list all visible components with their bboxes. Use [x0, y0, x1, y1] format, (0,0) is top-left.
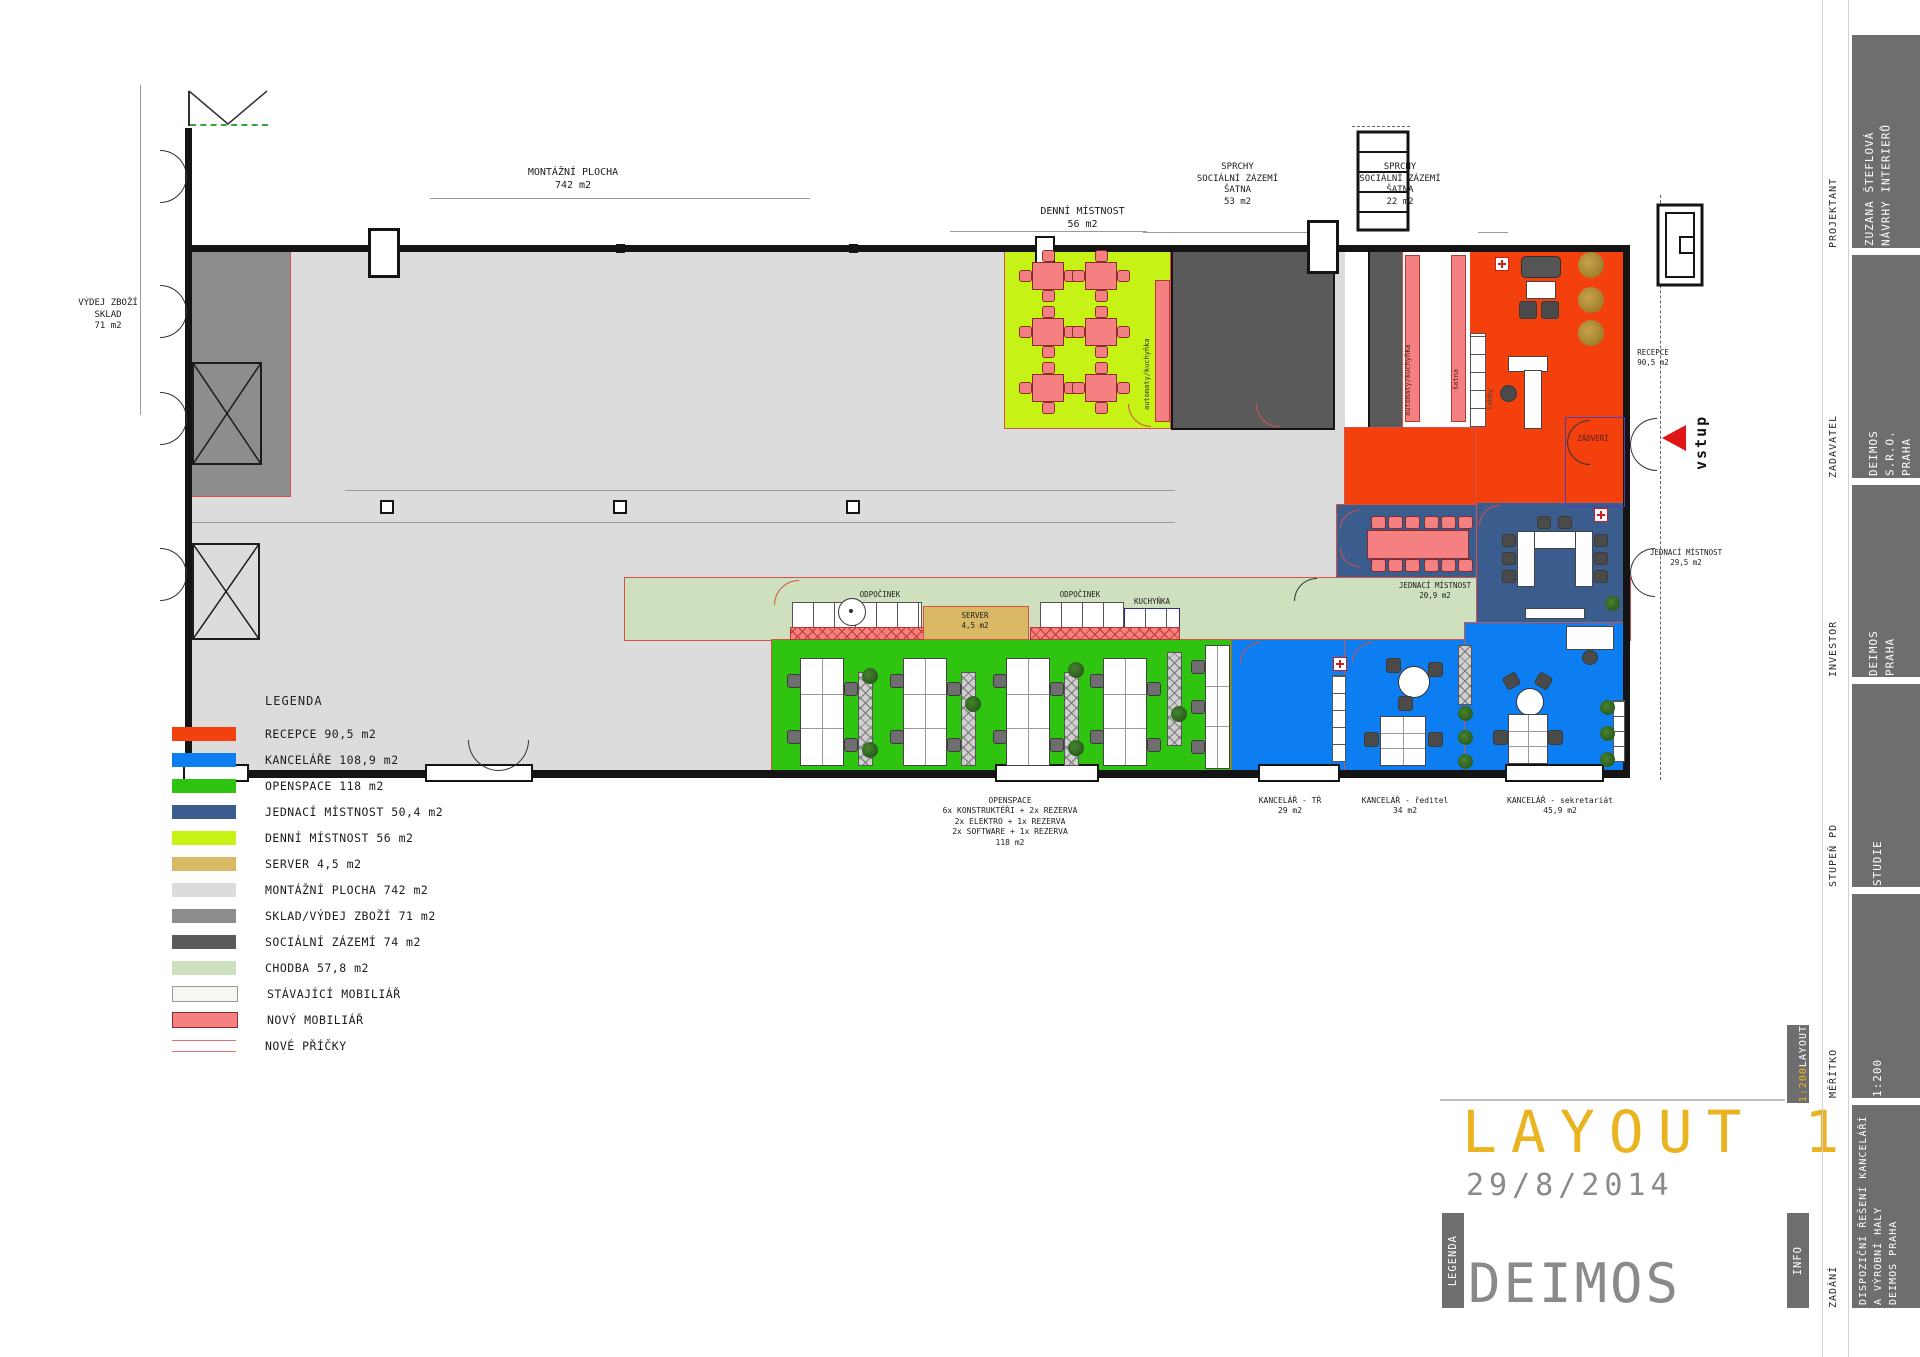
- legend-item-label: OPENSPACE 118 m2: [265, 779, 384, 793]
- chair: [947, 682, 961, 696]
- legend-item-label: SERVER 4,5 m2: [265, 857, 362, 871]
- dim-line: [1478, 232, 1508, 233]
- wall-right: [1623, 245, 1630, 778]
- legend-swatch: [172, 1040, 236, 1052]
- chair: [1493, 730, 1508, 745]
- shaft: [1307, 220, 1339, 274]
- meritko-label: MĚŘÍTKO: [1828, 1038, 1839, 1098]
- chair: [1095, 250, 1108, 262]
- plant: [1458, 754, 1473, 769]
- legend-item: DENNÍ MÍSTNOST 56 m2: [172, 830, 592, 845]
- chair: [1548, 730, 1563, 745]
- plant: [1600, 752, 1615, 767]
- drawing-sheet: automaty/kuchyňka šatna automaty/kuchyňk…: [0, 0, 1920, 1357]
- chair: [1019, 270, 1032, 282]
- entrance-arrow-icon: [1662, 425, 1686, 451]
- chair: [1095, 306, 1108, 318]
- u-table: [1575, 531, 1593, 587]
- chair: [1095, 290, 1108, 302]
- info-badge-label: INFO: [1792, 1246, 1804, 1275]
- chair: [1388, 559, 1403, 572]
- chair: [1388, 516, 1403, 529]
- automaty-label: automaty/kuchyňka: [1404, 330, 1412, 416]
- zadveri-label: ZÁDVEŘÍ: [1568, 434, 1618, 444]
- chair: [787, 674, 801, 688]
- legend-item-label: SOCIÁLNÍ ZÁZEMÍ 74 m2: [265, 935, 421, 949]
- chair: [1502, 570, 1516, 583]
- lobby-cabinet: [1470, 333, 1486, 427]
- dim-line: [1143, 232, 1307, 233]
- odpocinek2-label: ODPOČINEK: [1050, 590, 1110, 600]
- chair: [1458, 559, 1473, 572]
- legend-swatch: [172, 753, 236, 767]
- door-frame: [368, 228, 400, 278]
- layout-badge-word: LAYOUT: [1798, 1025, 1809, 1067]
- chair: [1042, 290, 1055, 302]
- round-table: [1398, 666, 1430, 698]
- chair: [1594, 552, 1608, 565]
- chair: [1042, 402, 1055, 414]
- legend-swatch: [172, 961, 236, 975]
- chair: [1537, 516, 1551, 529]
- wall-sill: [995, 764, 1099, 782]
- chair: [1371, 559, 1386, 572]
- chair: [1594, 534, 1608, 547]
- chair: [1424, 516, 1439, 529]
- jednaci295-label: JEDNACÍ MÍSTNOST 29,5 m2: [1642, 548, 1730, 568]
- chair: [787, 730, 801, 744]
- meritko-value: 1:200: [1870, 1053, 1887, 1097]
- legend-swatch: [172, 935, 236, 949]
- legend-item: NOVÉ PŘÍČKY: [172, 1038, 592, 1053]
- legend-item-label: MONTÁŽNÍ PLOCHA 742 m2: [265, 883, 428, 897]
- door-arc: [160, 574, 187, 601]
- legend-item: SKLAD/VÝDEJ ZBOŽÍ 71 m2: [172, 908, 592, 923]
- denni-label: DENNÍ MÍSTNOST 56 m2: [1010, 205, 1155, 231]
- stupen-value: STUDIE: [1870, 838, 1887, 886]
- legend-item-label: SKLAD/VÝDEJ ZBOŽÍ 71 m2: [265, 909, 436, 923]
- chair: [844, 682, 858, 696]
- chair: [1117, 326, 1130, 338]
- first-aid-icon: [1495, 257, 1509, 271]
- chair: [1458, 516, 1473, 529]
- grid-line: [345, 490, 1175, 491]
- dim-line: [430, 198, 810, 199]
- chair: [1371, 516, 1386, 529]
- chair: [1441, 559, 1456, 572]
- legend-swatch: [172, 727, 236, 741]
- storage-bay-mark: [192, 543, 260, 640]
- chair: [1428, 732, 1443, 747]
- legend-item: CHODBA 57,8 m2: [172, 960, 592, 975]
- zadavatel-value: DEIMOS S.R.O. PRAHA: [1866, 382, 1916, 476]
- chair: [844, 738, 858, 752]
- chair: [1441, 516, 1456, 529]
- legend-item-label: NOVÉ PŘÍČKY: [265, 1039, 347, 1053]
- office-chair: [1500, 385, 1517, 402]
- legend-swatch: [172, 779, 236, 793]
- chair: [1019, 326, 1032, 338]
- chair: [1072, 382, 1085, 394]
- legend-item: SERVER 4,5 m2: [172, 856, 592, 871]
- legend-item: JEDNACÍ MÍSTNOST 50,4 m2: [172, 804, 592, 819]
- sprchy22-label: SPRCHY SOCIÁLNÍ ZÁZEMÍ ŠATNA 22 m2: [1330, 162, 1470, 209]
- chair: [993, 730, 1007, 744]
- column: [846, 500, 860, 514]
- desk-pod: [903, 658, 947, 766]
- chair: [890, 674, 904, 688]
- chair: [1019, 382, 1032, 394]
- dim-line: [950, 231, 1147, 232]
- chair: [1191, 700, 1205, 714]
- info-badge: INFO: [1787, 1213, 1809, 1308]
- kancelar-sekretariat-label: KANCELÁŘ - sekretariát 45,9 m2: [1500, 796, 1620, 817]
- legend-item-label: KANCELÁŘE 108,9 m2: [265, 753, 399, 767]
- legend-item-label: CHODBA 57,8 m2: [265, 961, 369, 975]
- satna-label: šatna: [1452, 350, 1460, 390]
- chair: [1502, 534, 1516, 547]
- chair: [1090, 674, 1104, 688]
- legend-swatch: [172, 831, 236, 845]
- door-arc: [160, 311, 187, 338]
- chair: [993, 674, 1007, 688]
- legend-swatch: [172, 986, 238, 1002]
- wall-sill: [1505, 764, 1604, 782]
- zadveri-outline: [1565, 417, 1625, 507]
- legend-item-label: DENNÍ MÍSTNOST 56 m2: [265, 831, 413, 845]
- table: [1085, 262, 1117, 290]
- chair: [1364, 732, 1379, 747]
- desk-pod: [1006, 658, 1050, 766]
- door-arc: [160, 418, 187, 445]
- layout-badge-scale: 1:200: [1798, 1068, 1809, 1103]
- projektant-label: PROJEKTANT: [1828, 178, 1839, 248]
- plant: [862, 742, 878, 758]
- table: [1032, 318, 1064, 346]
- legend-item: KANCELÁŘE 108,9 m2: [172, 752, 592, 767]
- plant: [1605, 596, 1620, 611]
- desk: [1566, 626, 1614, 650]
- property-line: [1352, 126, 1410, 127]
- chair: [1042, 346, 1055, 358]
- plant: [1068, 662, 1084, 678]
- chair: [947, 738, 961, 752]
- chair: [1117, 382, 1130, 394]
- chair: [1095, 362, 1108, 374]
- wall-top: [185, 245, 1630, 252]
- legend-swatch: [172, 805, 236, 819]
- chair: [1398, 696, 1413, 711]
- jednaci209-label: JEDNACÍ MÍSTNOST 20,9 m2: [1390, 581, 1480, 601]
- odpocinek1-label: ODPOČINEK: [850, 590, 910, 600]
- legend-title: LEGENDA: [265, 694, 592, 708]
- plant: [1578, 252, 1604, 278]
- sprchy53-label: SPRCHY SOCIÁLNÍ ZÁZEMÍ ŠATNA 53 m2: [1150, 162, 1325, 209]
- chair: [1428, 662, 1443, 677]
- zadavatel-label: ZADAVATEL: [1828, 402, 1839, 478]
- locker-strip: [1030, 627, 1180, 640]
- zadani-value: DISPOZIČNÍ ŘEŠENÍ KANCELÁŘÍ A VÝROBNÍ HA…: [1856, 1112, 1901, 1305]
- table: [1032, 262, 1064, 290]
- chair: [1502, 552, 1516, 565]
- chair: [1386, 658, 1401, 673]
- legend-item: NOVÝ MOBILIÁŘ: [172, 1012, 592, 1027]
- legend-swatch: [172, 909, 236, 923]
- round-table-dot: [849, 609, 853, 613]
- sofa: [1521, 256, 1561, 278]
- company-logo: DEIMOS: [1468, 1252, 1681, 1315]
- chair: [1095, 402, 1108, 414]
- dim-extension: [140, 85, 141, 415]
- table: [1085, 318, 1117, 346]
- legend-item-label: STÁVAJÍCÍ MOBILIÁŘ: [267, 987, 401, 1001]
- plant: [1600, 700, 1615, 715]
- door-arc: [160, 548, 187, 575]
- double-desk: [1380, 716, 1426, 766]
- office-cabinet: [1332, 675, 1346, 762]
- zone-recepce-ext: [1345, 428, 1475, 505]
- legend-swatch: [172, 857, 236, 871]
- kancelar-tr-label: KANCELÁŘ - TŘ 29 m2: [1240, 796, 1340, 817]
- chair: [1147, 682, 1161, 696]
- chair: [1558, 516, 1572, 529]
- montazni-label: MONTÁŽNÍ PLOCHA 742 m2: [493, 166, 653, 192]
- chair: [1095, 346, 1108, 358]
- chair: [1594, 570, 1608, 583]
- legend: LEGENDA RECEPCE 90,5 m2KANCELÁŘE 108,9 m…: [172, 694, 592, 1064]
- chair: [1191, 740, 1205, 754]
- legend-rows: RECEPCE 90,5 m2KANCELÁŘE 108,9 m2OPENSPA…: [172, 726, 592, 1053]
- wall-left: [185, 128, 192, 778]
- double-desk: [1508, 714, 1548, 764]
- plant: [1458, 730, 1473, 745]
- shelf: [1458, 645, 1472, 705]
- server-label: SERVER 4,5 m2: [940, 611, 1010, 631]
- door-arc: [1630, 418, 1657, 445]
- legend-item: RECEPCE 90,5 m2: [172, 726, 592, 741]
- zadani-label: ZADÁNÍ: [1828, 1253, 1839, 1308]
- armchair: [1541, 301, 1559, 319]
- projektant-value: ZUZANA ŠTEFLOVÁ NÁVRHY INTERIERŮ: [1862, 118, 1895, 246]
- desk-pod: [800, 658, 844, 766]
- door-arc: [160, 176, 187, 203]
- legend-item: STÁVAJÍCÍ MOBILIÁŘ: [172, 986, 592, 1001]
- openspace-label: OPENSPACE 6x KONSTRUKTÉŘI + 2x REZERVA 2…: [905, 796, 1115, 848]
- chair: [1117, 270, 1130, 282]
- vstup-label: vstup: [1692, 408, 1710, 470]
- plant: [1458, 706, 1473, 721]
- desk-pod: [1205, 645, 1230, 769]
- cabinet-strip: [1155, 280, 1170, 422]
- chair: [1042, 250, 1055, 262]
- plant: [1068, 740, 1084, 756]
- first-aid-icon: [1594, 508, 1608, 522]
- chair: [890, 730, 904, 744]
- chair: [1405, 559, 1420, 572]
- door-arc: [160, 392, 187, 419]
- legend-item-label: JEDNACÍ MÍSTNOST 50,4 m2: [265, 805, 443, 819]
- desk-pod: [1103, 658, 1147, 766]
- shelf: [1167, 652, 1182, 746]
- zone-socialni-22: [1370, 248, 1403, 428]
- legend-swatch: [172, 1012, 238, 1028]
- legend-item-label: NOVÝ MOBILIÁŘ: [267, 1013, 364, 1027]
- legenda-badge: LEGENDA: [1442, 1213, 1464, 1308]
- legend-item-label: RECEPCE 90,5 m2: [265, 727, 376, 741]
- legend-swatch: [172, 883, 236, 897]
- cabinet-strip: [1451, 255, 1466, 422]
- lobby-label: lobby: [1486, 370, 1494, 410]
- vydej-label: VÝDEJ ZBOŽÍ SKLAD 71 m2: [60, 298, 156, 333]
- sidebar-frame-line: [1848, 0, 1849, 1357]
- column: [613, 500, 627, 514]
- shelf: [961, 672, 976, 766]
- plant: [965, 696, 981, 712]
- kancelar-reditel-label: KANCELÁŘ - ředitel 34 m2: [1352, 796, 1458, 817]
- chair: [1050, 738, 1064, 752]
- first-aid-icon: [1333, 657, 1347, 671]
- exterior-stair: [1656, 203, 1704, 287]
- u-table: [1517, 531, 1535, 587]
- plant: [862, 668, 878, 684]
- corridor-cabinets: [1040, 602, 1124, 628]
- plant: [1578, 287, 1604, 313]
- stupen-label: STUPEŇ PD: [1828, 812, 1839, 887]
- table: [1032, 374, 1064, 402]
- chair: [1424, 559, 1439, 572]
- kuchynka-label: KUCHYŇKA: [1122, 597, 1182, 607]
- chair: [1042, 362, 1055, 374]
- office-chair: [1582, 650, 1598, 665]
- conference-table: [1367, 530, 1469, 559]
- armchair: [1519, 301, 1537, 319]
- automaty-label: automaty/kuchyňka: [1143, 300, 1151, 410]
- sidebar-frame-line: [1822, 0, 1823, 1357]
- legenda-badge-label: LEGENDA: [1447, 1235, 1459, 1286]
- storage-bay-mark: [192, 362, 262, 465]
- chair: [1050, 682, 1064, 696]
- round-table: [1516, 688, 1544, 716]
- door-arc: [1630, 572, 1655, 597]
- chair: [1072, 326, 1085, 338]
- door-arc: [160, 285, 187, 312]
- plant: [1600, 726, 1615, 741]
- sheet-date: 29/8/2014: [1466, 1168, 1674, 1203]
- chair: [1042, 306, 1055, 318]
- door-arc: [160, 150, 187, 177]
- table: [1085, 374, 1117, 402]
- recepce-label: RECEPCE 90,5 m2: [1625, 348, 1681, 368]
- investor-value: DEIMOS PRAHA: [1866, 628, 1899, 676]
- legend-item: OPENSPACE 118 m2: [172, 778, 592, 793]
- projection-screen: [1525, 608, 1585, 619]
- locker-strip: [790, 627, 924, 640]
- chair: [1405, 516, 1420, 529]
- legend-item: SOCIÁLNÍ ZÁZEMÍ 74 m2: [172, 934, 592, 949]
- reception-desk: [1524, 370, 1542, 429]
- layout-scale-badge: 1:200LAYOUT: [1787, 1025, 1809, 1103]
- chair: [1191, 660, 1205, 674]
- chair: [1090, 730, 1104, 744]
- plant: [1578, 320, 1604, 346]
- legend-item: MONTÁŽNÍ PLOCHA 742 m2: [172, 882, 592, 897]
- gate-threshold: [190, 124, 268, 126]
- investor-label: INVESTOR: [1828, 617, 1839, 677]
- wall-sill: [1258, 764, 1340, 782]
- plant: [1171, 706, 1187, 722]
- chair: [1147, 738, 1161, 752]
- chair: [1072, 270, 1085, 282]
- coffee-table: [1526, 281, 1556, 299]
- door-arc: [1630, 444, 1657, 471]
- grid-line: [192, 522, 1175, 523]
- zone-socialni-53: [1173, 248, 1333, 428]
- sheet-title: LAYOUT 1: [1462, 1098, 1853, 1166]
- column: [380, 500, 394, 514]
